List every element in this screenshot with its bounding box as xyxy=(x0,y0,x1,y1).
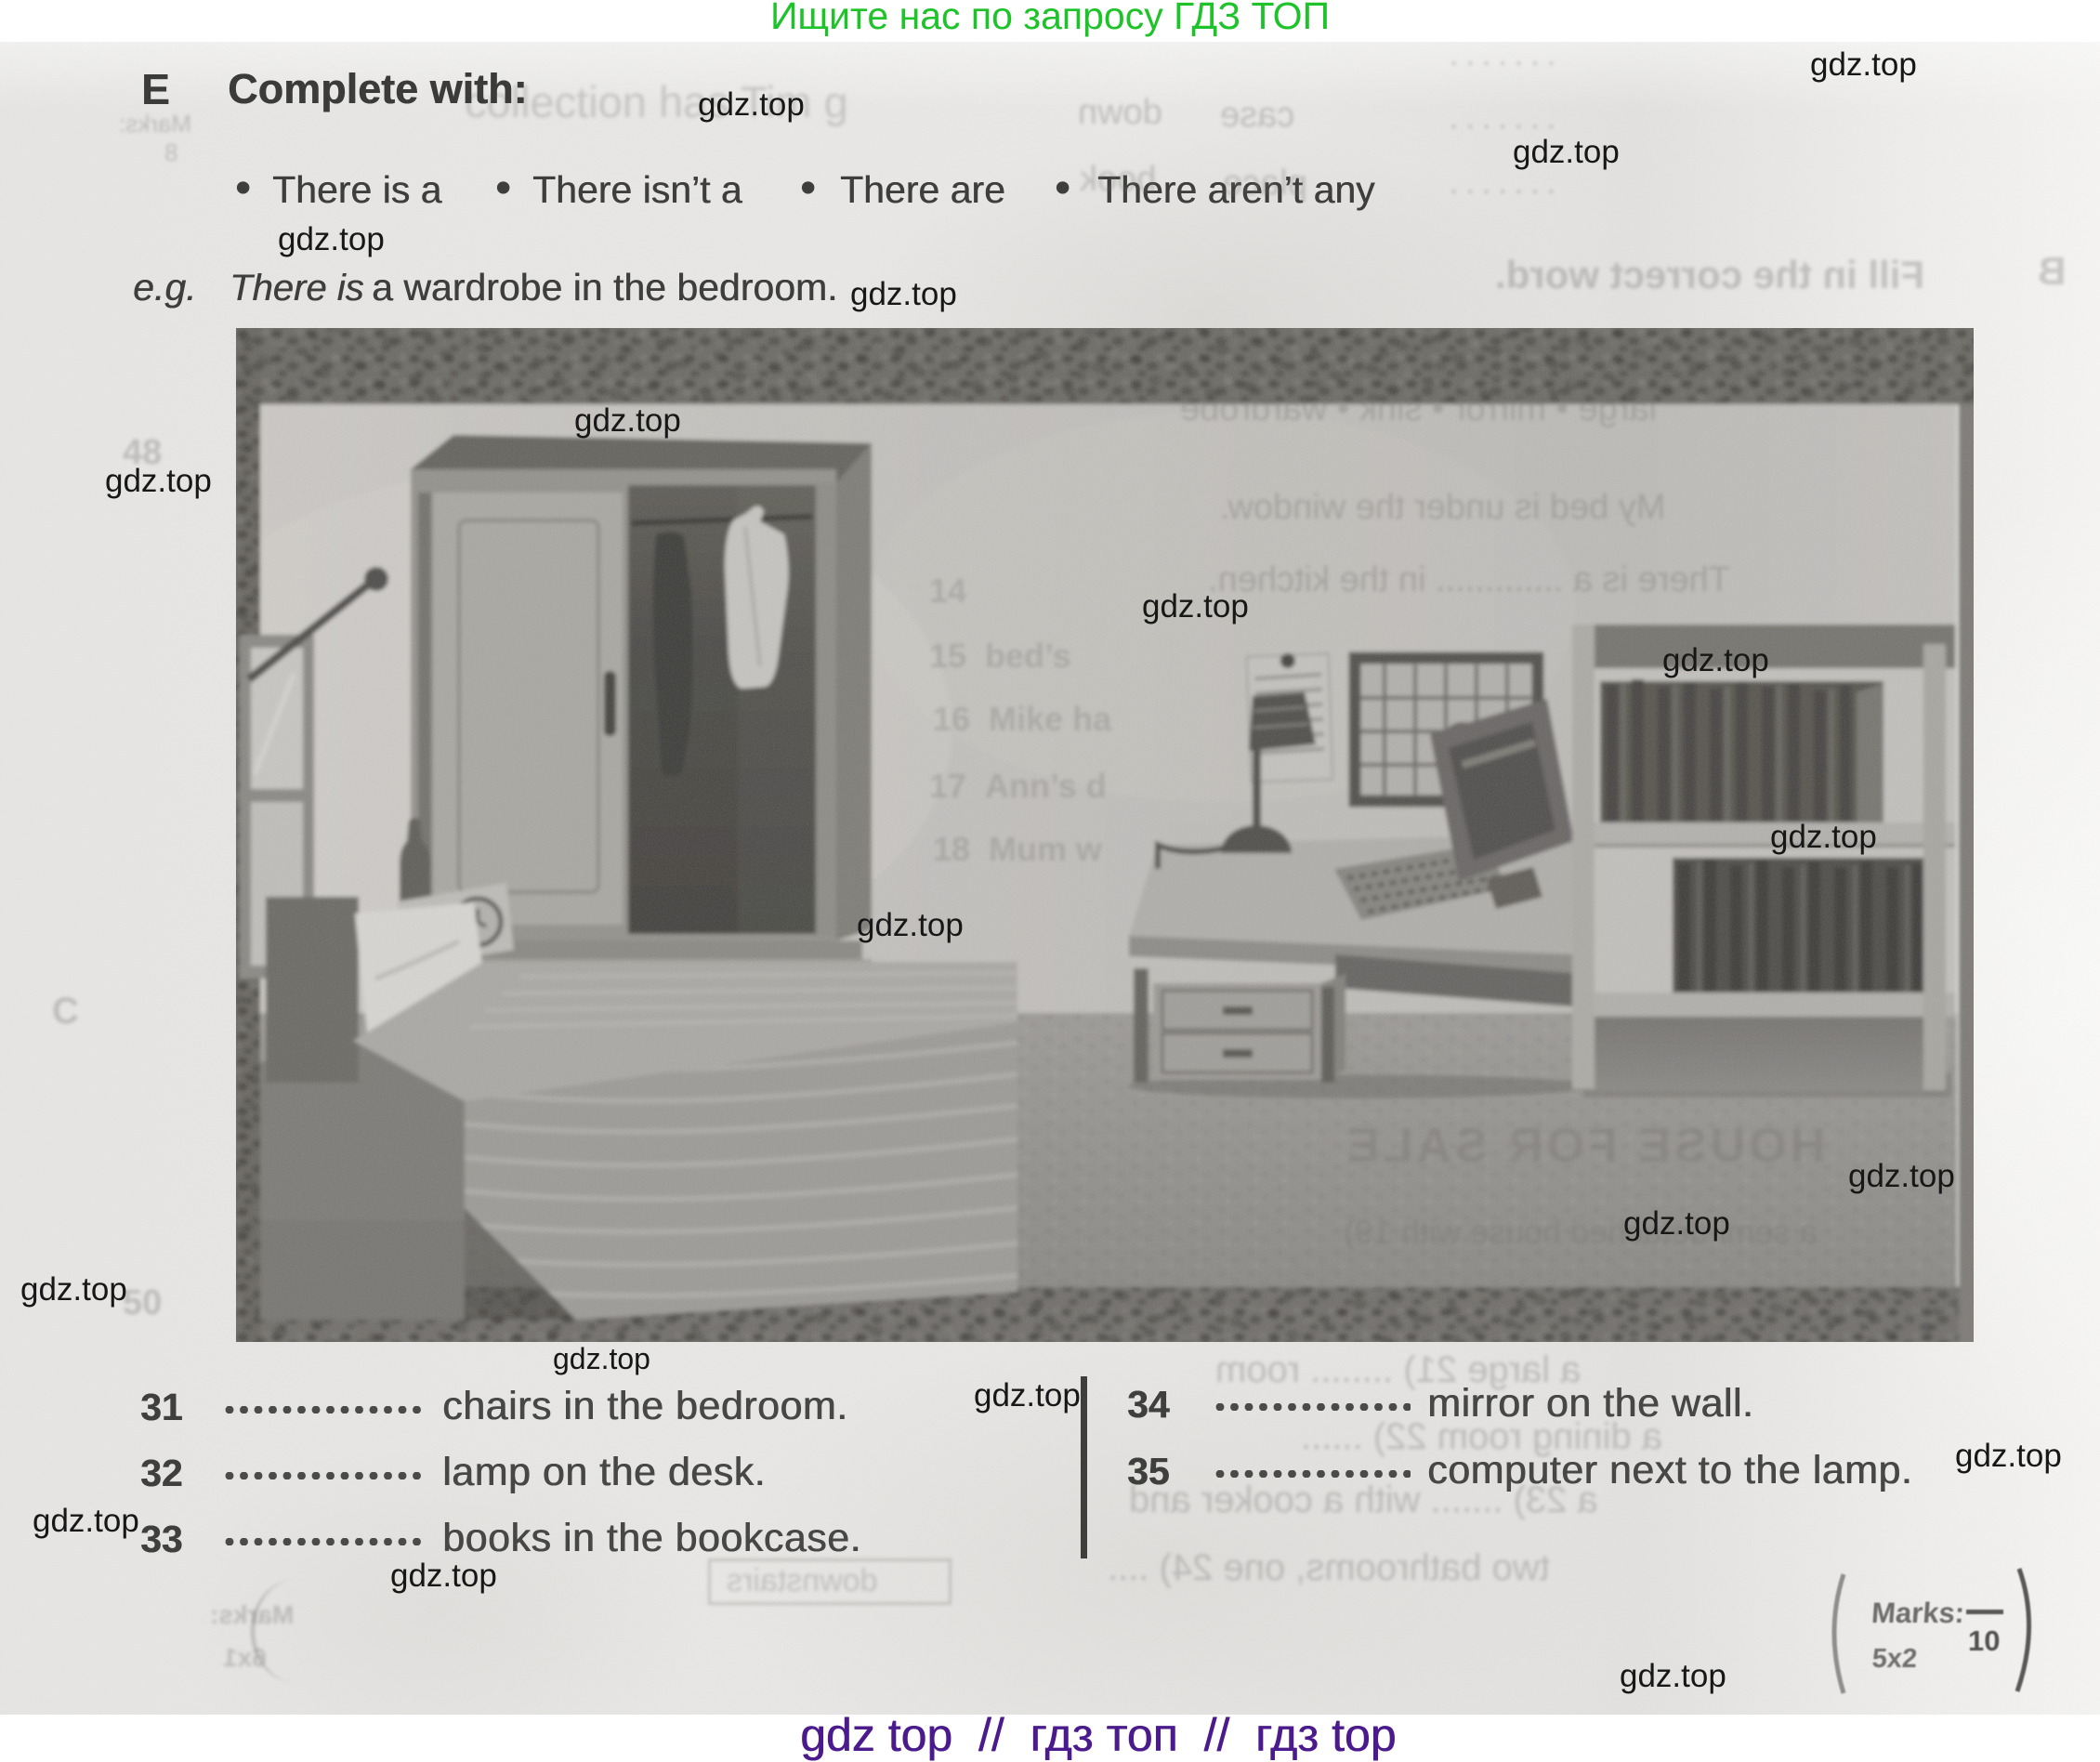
svg-text:Marks:: Marks: xyxy=(1870,1597,1965,1629)
svg-text:5x2: 5x2 xyxy=(1871,1644,1919,1674)
svg-text:10: 10 xyxy=(1968,1624,2000,1657)
